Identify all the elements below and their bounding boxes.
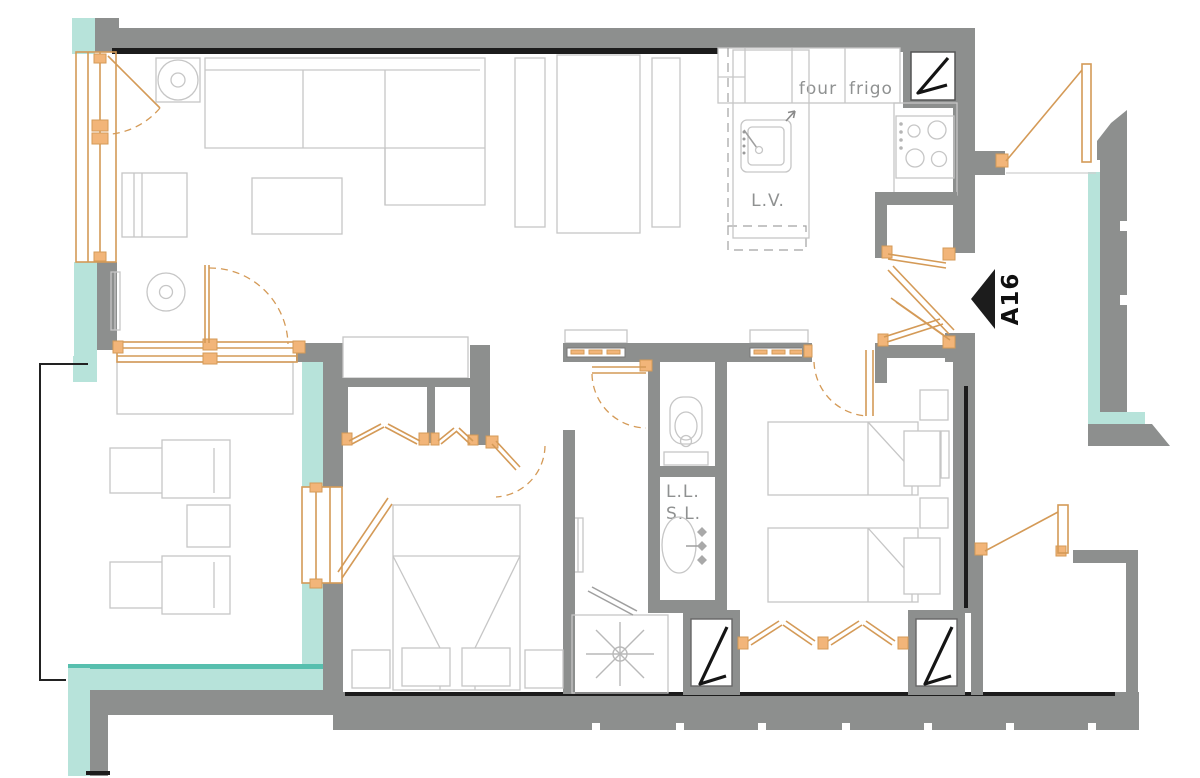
dishwasher-label: L.V.: [751, 191, 785, 211]
pillow: [462, 648, 510, 686]
dining-bench: [515, 58, 545, 227]
faucet-handles: [697, 527, 707, 565]
wall-north-inner-line: [112, 48, 737, 54]
balcony: [40, 362, 343, 776]
bedroom1-door-leaf: [492, 444, 516, 470]
duct-shaft-bedroom2: [908, 610, 965, 695]
nightstand: [920, 390, 948, 420]
north-arrow-icon: [786, 111, 795, 121]
wall-east-entry: [953, 175, 975, 253]
nightstand: [525, 650, 563, 688]
wardrobe-shelf: [343, 337, 468, 378]
door-swing-arc: [112, 108, 160, 134]
oven-label: four: [799, 79, 837, 99]
armchair: [147, 273, 185, 311]
pillow: [904, 431, 940, 486]
side-table: [122, 173, 187, 237]
toilet: [670, 397, 702, 444]
shower-door: [588, 591, 633, 615]
unit-arrow-icon: [971, 269, 995, 329]
entry-hall: A16: [875, 192, 1024, 383]
adjacent-room: [971, 505, 1138, 695]
bath-wall-west: [648, 362, 660, 613]
washer-label: L.L.: [666, 482, 700, 502]
door-swing: [985, 512, 1058, 551]
closet-folding-door: [748, 621, 779, 641]
door-swing-arc: [209, 268, 288, 344]
fridge-label: frigo: [849, 79, 893, 99]
wall-west-lower: [97, 262, 117, 350]
radiator: [941, 431, 949, 478]
bedroom-2: [738, 350, 949, 649]
pillow: [904, 538, 940, 594]
sliding-door-pocket: [750, 330, 808, 343]
unit-label: A16: [998, 273, 1024, 326]
door-swing-arc: [496, 446, 545, 497]
duct-shaft-kitchen: [903, 44, 963, 108]
pillow: [402, 648, 450, 686]
window-frame: [76, 52, 116, 262]
armchair: [156, 58, 200, 102]
corridor: [996, 64, 1170, 446]
window-sill: [117, 362, 293, 414]
entrance-door-swing: [1006, 70, 1082, 161]
door-swing-arc: [592, 374, 646, 428]
nightstand: [920, 498, 948, 528]
duct-shaft-bath: [683, 610, 740, 695]
window-frame: [302, 487, 342, 583]
insulation-top-left: [72, 18, 95, 54]
corridor-insulation: [1088, 172, 1100, 438]
balcony-outline: [40, 364, 88, 680]
single-bed: [768, 422, 918, 495]
floor-plan: four frigo L.V. A16: [0, 0, 1200, 778]
balcony-table: [187, 505, 230, 547]
coffee-table: [252, 178, 342, 234]
nightstand: [352, 650, 390, 688]
window-casement: [342, 504, 392, 578]
wardrobe-folding-door: [349, 424, 381, 441]
washbasin: [662, 517, 696, 573]
bath-wall-east: [715, 343, 727, 613]
wall-south: [333, 692, 1139, 730]
kitchen-counter-east: [894, 103, 957, 195]
door-swing-arc: [814, 362, 868, 416]
entrance-door-leaf: [1082, 64, 1091, 162]
dryer-label: S.L.: [666, 504, 701, 524]
floor-plan-page: four frigo L.V. A16: [0, 0, 1200, 778]
single-bed: [768, 528, 918, 602]
sliding-door-pocket: [565, 330, 627, 343]
dining-table: [557, 55, 640, 233]
sofa: [205, 58, 485, 205]
bath-shelf: [664, 452, 708, 465]
dining-bench: [652, 58, 680, 227]
closet-door: [888, 254, 946, 263]
balcony-insulation-south: [68, 669, 323, 692]
